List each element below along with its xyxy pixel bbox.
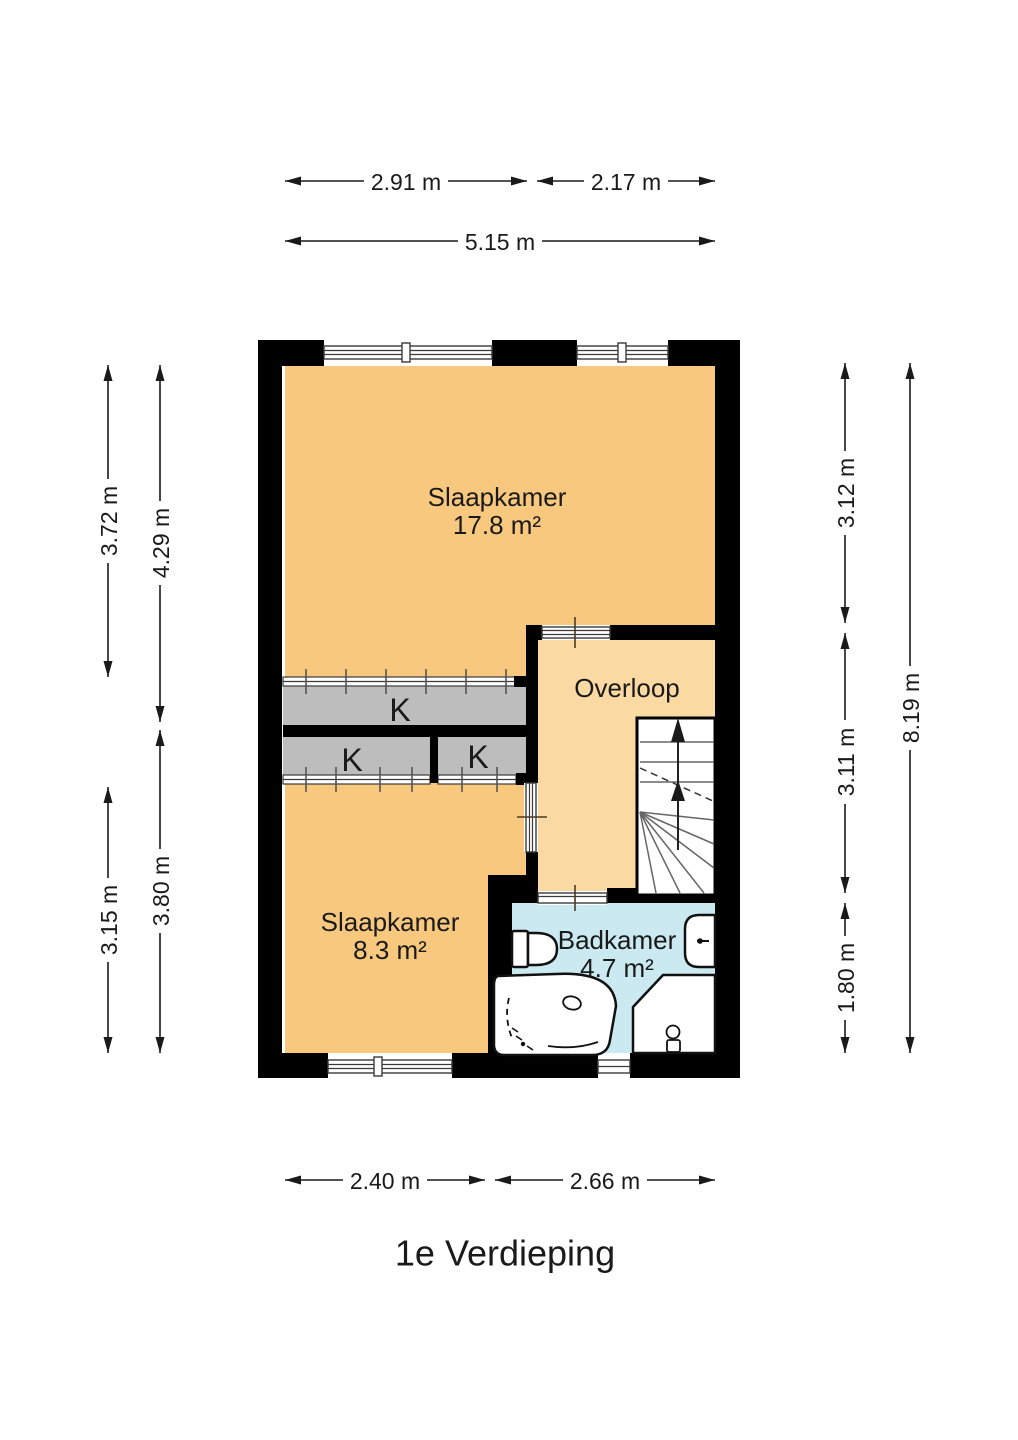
svg-text:5.15 m: 5.15 m (465, 229, 535, 255)
dim-left-372: 3.72 m (96, 365, 122, 677)
wall-left (258, 340, 282, 1078)
label-slaapkamer1-name: Slaapkamer (428, 482, 567, 512)
wall-right (715, 340, 740, 1078)
label-overloop-name: Overloop (574, 673, 680, 703)
wall-below-window (526, 852, 538, 878)
window-mullion (374, 1057, 382, 1076)
dim-left-315: 3.15 m (96, 787, 122, 1053)
stairs (637, 718, 715, 895)
wall-overloop-top-right (610, 625, 715, 640)
window-top-right (577, 340, 668, 366)
svg-text:3.80 m: 3.80 m (148, 856, 174, 926)
window-mullion (618, 343, 626, 362)
dim-right-819: 8.19 m (898, 363, 924, 1053)
svg-text:3.12 m: 3.12 m (833, 458, 859, 528)
dim-top-217: 2.17 m (537, 169, 715, 195)
svg-text:3.72 m: 3.72 m (96, 486, 122, 556)
svg-text:1.80 m: 1.80 m (833, 943, 859, 1013)
dim-right-311: 3.11 m (833, 633, 859, 893)
wall-closet-overloop (526, 625, 538, 783)
label-closet-k2: K (341, 742, 362, 778)
label-closet-k1: K (389, 692, 410, 728)
label-slaapkamer1-area: 17.8 m² (453, 510, 541, 540)
dim-top-515: 5.15 m (285, 229, 715, 255)
wall-rail-cap-top (514, 676, 526, 687)
stairs-outline (637, 718, 715, 895)
svg-text:2.40 m: 2.40 m (350, 1168, 420, 1194)
svg-text:3.11 m: 3.11 m (833, 728, 859, 797)
sink-icon (685, 915, 715, 967)
window-mullion (402, 343, 410, 362)
svg-text:3.15 m: 3.15 m (96, 885, 122, 955)
dim-right-180: 1.80 m (833, 903, 859, 1053)
svg-text:8.19 m: 8.19 m (898, 673, 924, 743)
label-badkamer-name: Badkamer (558, 925, 677, 955)
wall-slaapkamer2-notch (488, 875, 538, 903)
dim-top-291: 2.91 m (285, 169, 527, 195)
floorplan-canvas: Slaapkamer 17.8 m² Overloop Slaapkamer 8… (0, 0, 1018, 1440)
page-title: 1e Verdieping (395, 1233, 615, 1274)
window-top-left (324, 340, 492, 366)
label-closet-k3: K (467, 739, 488, 775)
label-slaapkamer2-name: Slaapkamer (321, 907, 460, 937)
dim-left-380: 3.80 m (148, 730, 174, 1053)
toilet-icon (512, 931, 557, 967)
svg-text:4.29 m: 4.29 m (148, 508, 174, 578)
floorplan-page: Slaapkamer 17.8 m² Overloop Slaapkamer 8… (0, 0, 1018, 1440)
dim-bottom-240: 2.40 m (285, 1168, 485, 1194)
dim-left-429: 4.29 m (148, 365, 174, 722)
svg-text:2.66 m: 2.66 m (570, 1168, 640, 1194)
dim-right-312: 3.12 m (833, 363, 859, 623)
svg-text:2.91 m: 2.91 m (371, 169, 441, 195)
window-bottom-left (328, 1053, 452, 1078)
window-bottom-right (598, 1053, 630, 1078)
label-slaapkamer2-area: 8.3 m² (353, 935, 427, 965)
bathtub-icon (494, 974, 616, 1055)
svg-text:2.17 m: 2.17 m (591, 169, 661, 195)
wall-closet-divider (430, 735, 438, 783)
dim-bottom-266: 2.66 m (495, 1168, 715, 1194)
label-badkamer-area: 4.7 m² (580, 953, 654, 983)
